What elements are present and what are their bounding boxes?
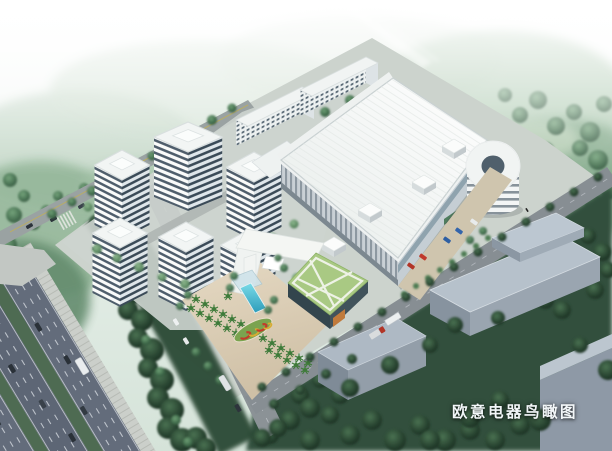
aerial-rendering: 欧意电器鸟瞰图 <box>0 0 612 451</box>
residential-tower-2 <box>154 122 222 211</box>
watermark-caption: 欧意电器鸟瞰图 <box>452 400 612 422</box>
rendering-canvas <box>0 0 612 451</box>
